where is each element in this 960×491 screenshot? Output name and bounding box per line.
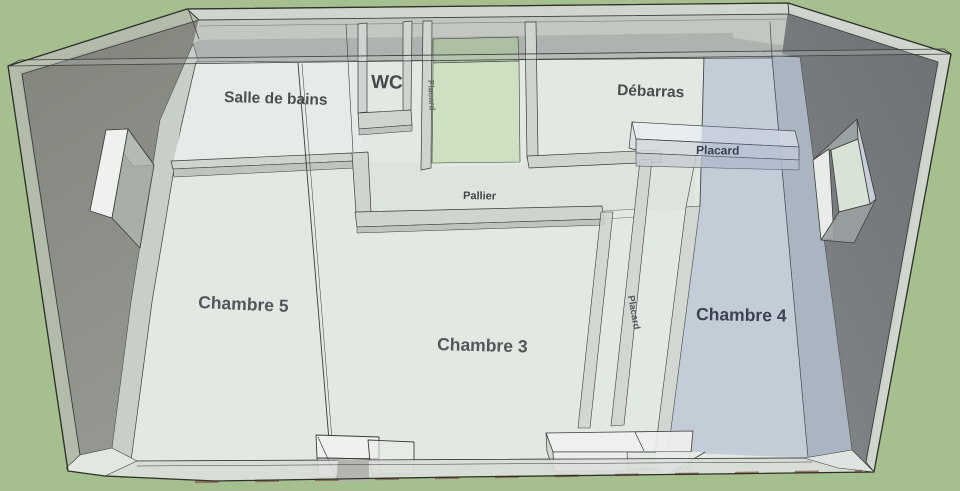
svg-text:Salle de bains: Salle de bains <box>224 89 328 109</box>
svg-text:Placard: Placard <box>426 80 438 111</box>
svg-text:Débarras: Débarras <box>617 82 685 101</box>
svg-text:Chambre 5: Chambre 5 <box>198 292 290 316</box>
svg-text:WC: WC <box>371 72 403 94</box>
svg-text:Chambre 3: Chambre 3 <box>437 334 528 356</box>
svg-text:Placard: Placard <box>696 143 740 158</box>
svg-text:Chambre 4: Chambre 4 <box>696 304 787 326</box>
svg-text:Pallier: Pallier <box>463 190 497 203</box>
